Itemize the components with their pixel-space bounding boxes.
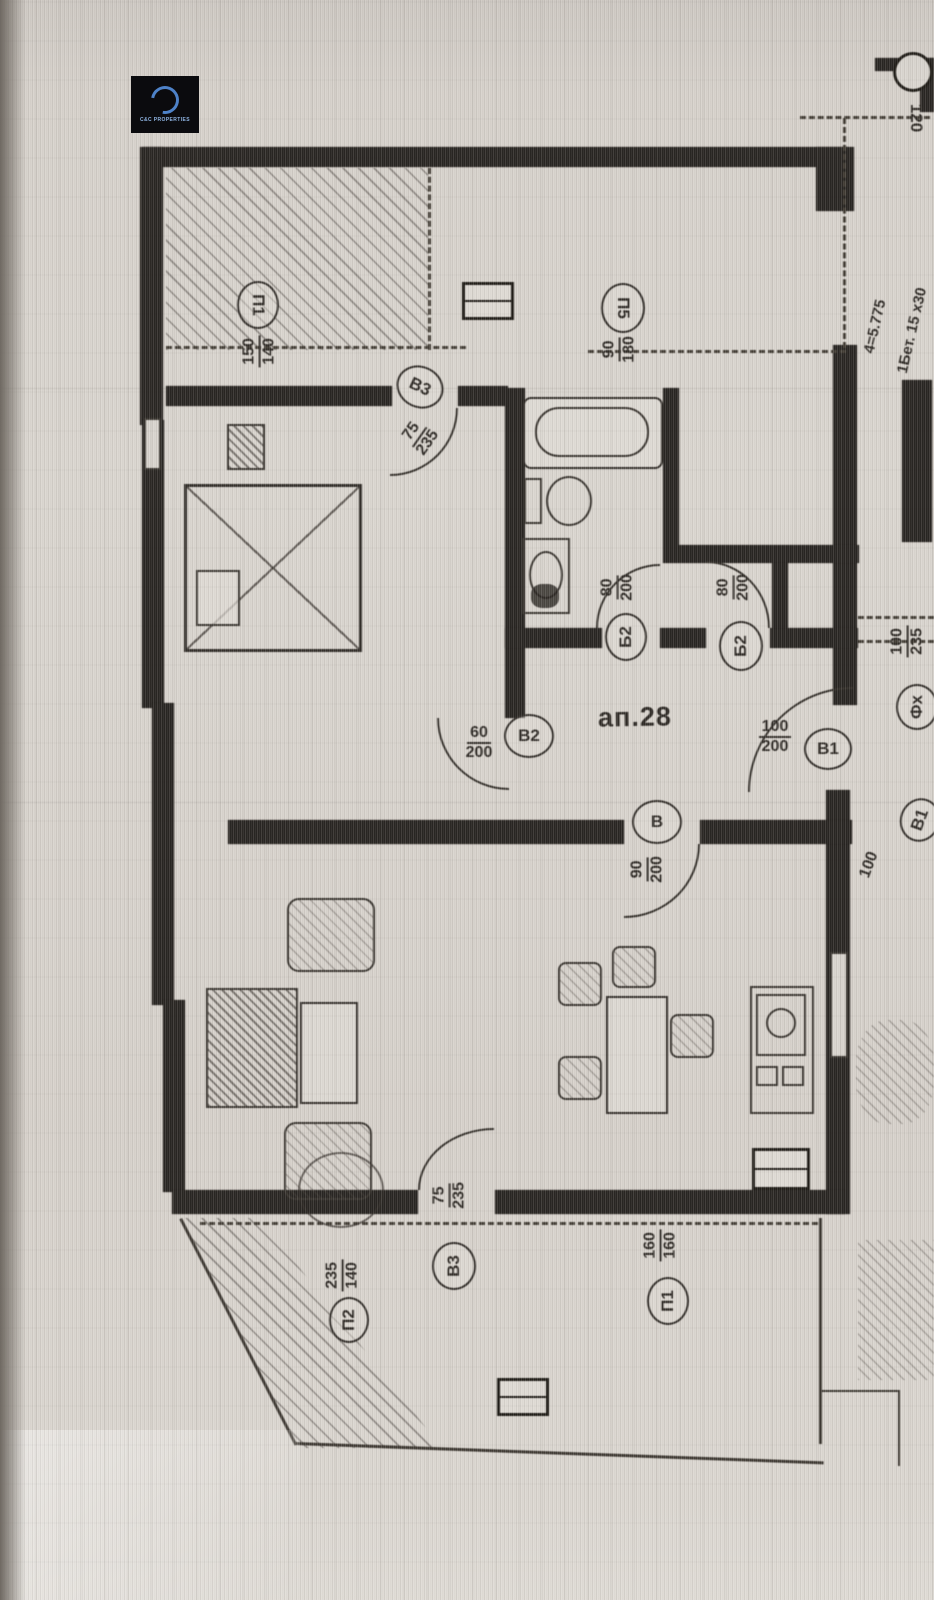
dining-chair: [670, 1014, 714, 1058]
door-label-v2: В2: [504, 714, 554, 758]
dining-chair: [558, 962, 602, 1006]
terrace-bottom-edge: [296, 1442, 824, 1464]
wall-hall-living-left: [228, 820, 624, 844]
window-dim-p2-bottom: 235140: [324, 1252, 363, 1298]
window-label-p1-top: П1: [237, 281, 279, 329]
dashed-line-terrace-right: [843, 118, 846, 348]
bed-pillow: [196, 570, 240, 626]
bathtub-inner: [535, 407, 649, 457]
wall-bath-bottom-right: [770, 628, 858, 648]
window-label-p2-bottom: П2: [329, 1297, 369, 1343]
agency-logo-text: C&C PROPERTIES: [140, 117, 190, 123]
dining-chair: [612, 946, 656, 988]
dim-100-right-label: 100: [856, 849, 882, 880]
dim-120-label: 120: [906, 104, 926, 132]
stairs-scribble: [858, 1240, 934, 1380]
hatched-terrace-top-left: [166, 168, 428, 350]
door-dim-b2-right: 80200: [715, 567, 754, 607]
paper-light-patch: [0, 1430, 300, 1600]
section-marker-circle: [893, 52, 933, 92]
door-dim-v2: 60200: [452, 724, 506, 763]
window-right-wall: [830, 952, 848, 1058]
window-label-fx: Фх: [896, 684, 934, 730]
terrace-step-line-v: [898, 1390, 900, 1466]
dashed-line-bedroom-top: [166, 346, 466, 349]
dashed-line-terrace-bottom-top: [200, 1222, 818, 1225]
window-dim-p1-top: 150140: [241, 329, 280, 373]
door-label-b2-left: Б2: [605, 613, 647, 661]
wall-door-jamb: [772, 563, 788, 628]
sofa: [206, 988, 298, 1108]
door-label-b2-right: Б2: [719, 621, 763, 671]
window-symbol-terrace: [497, 1378, 549, 1416]
terrace-step-line-h: [820, 1390, 900, 1392]
door-dim-v: 90200: [629, 847, 668, 891]
wall-bedroom-top-left: [166, 386, 392, 406]
dining-table: [606, 996, 668, 1114]
tv-cabinet-drawer: [756, 1066, 778, 1086]
window-dim-fx: 100235: [889, 617, 928, 665]
window-left-wall: [144, 418, 161, 470]
wall-hall-living-right: [700, 820, 852, 844]
door-label-v1: В1: [804, 728, 852, 770]
wall-bath-bottom-mid: [660, 628, 706, 648]
wall-left-1: [140, 147, 163, 425]
wall-bath-divider: [663, 388, 679, 563]
door-label-v: В: [632, 800, 682, 844]
wall-bath-bottom-left: [505, 628, 602, 648]
terrace-hatch-band: [182, 1218, 442, 1448]
coffee-table: [300, 1002, 358, 1104]
agency-logo-emblem-icon: [146, 81, 185, 120]
dashed-line-hatch-right: [428, 168, 431, 350]
wall-top-right-block: [816, 147, 854, 211]
window-symbol-top: [462, 282, 514, 320]
wardrobe: [227, 424, 265, 470]
armchair-top: [287, 898, 375, 972]
tv-cabinet-circle: [766, 1008, 796, 1038]
window-symbol-living: [752, 1148, 810, 1190]
scan-crease: [0, 802, 934, 803]
wall-left-3: [152, 703, 174, 1005]
wall-bottom-right: [495, 1190, 845, 1214]
sink-dark-fill: [531, 584, 559, 608]
plant-scribble: [856, 1020, 934, 1124]
tv-cabinet-drawer: [782, 1066, 804, 1086]
photo-left-shadow: [0, 0, 26, 1600]
apartment-number-label: ап.28: [598, 701, 672, 733]
terrace-right-edge: [819, 1218, 822, 1444]
neighbour-wall-mid: [902, 380, 932, 542]
door-dim-v1: 100200: [746, 718, 804, 757]
door-dim-b2-left: 80200: [599, 567, 638, 607]
door-dim-v3-bottom: 75235: [431, 1173, 470, 1217]
window-label-p1-bottom: П1: [647, 1277, 689, 1325]
column-circle-mark: [298, 1152, 384, 1228]
wall-left-4: [163, 1000, 185, 1192]
toilet-bowl: [546, 476, 592, 526]
wall-bedroom-top-right: [458, 386, 508, 406]
floor-plan: 120 П1 150140 П5 90180 В3 75235 80200 Б2…: [0, 0, 934, 1600]
scan-crease: [0, 388, 934, 389]
wall-top: [143, 147, 848, 167]
dim-100-right-circle: В1: [894, 792, 934, 847]
dining-chair: [558, 1056, 602, 1100]
agency-logo: C&C PROPERTIES: [131, 76, 199, 133]
scanned-floor-plan-photo: C&C PROPERTIES: [0, 0, 934, 1600]
toilet-tank: [524, 478, 542, 524]
bed: [184, 484, 362, 652]
door-label-v3-bottom: В3: [432, 1242, 476, 1290]
window-dim-p1-bottom: 160160: [642, 1222, 681, 1268]
window-dim-p5: 90180: [601, 321, 640, 377]
